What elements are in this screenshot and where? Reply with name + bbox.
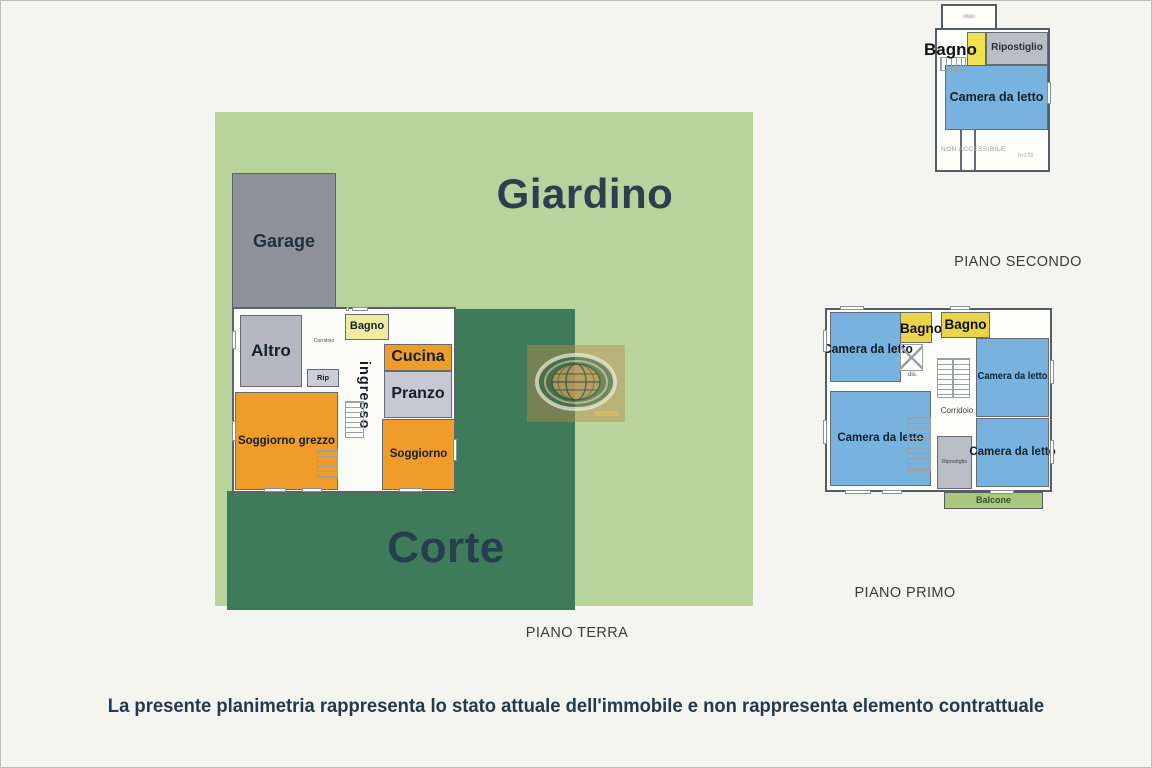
room-ripostiglio-p1: Ripostiglio: [937, 436, 972, 489]
stairs: [937, 358, 970, 398]
room-altro: Altro: [240, 315, 302, 387]
camera-p2-label: Camera da letto: [950, 91, 1044, 104]
window-marker: [990, 490, 1014, 494]
camera-br-label: Camera da letto: [969, 446, 1055, 458]
rip-label: Rip: [317, 374, 329, 382]
room-bagno-pt: Bagno: [345, 314, 389, 340]
soggiorno-label: Soggiorno: [390, 448, 448, 460]
window-marker: [840, 306, 864, 310]
window-marker: [346, 307, 349, 311]
corte-label: Corte: [366, 522, 526, 574]
bagno1-p1-label: Bagno: [898, 321, 944, 336]
room-camera-p2: Camera da letto: [945, 65, 1048, 130]
camera-tr-label: Camera da letto: [978, 372, 1048, 383]
window-marker: [823, 420, 827, 444]
window-marker: [1050, 360, 1054, 384]
stairs: [345, 401, 364, 438]
giardino-label: Giardino: [468, 170, 702, 218]
window-marker: [399, 488, 423, 492]
balcone: Balcone: [944, 492, 1043, 509]
stairs: [317, 450, 338, 478]
window-marker: [845, 490, 871, 494]
room-soggiorno: Soggiorno: [382, 419, 455, 490]
stair-rail: [952, 358, 954, 398]
cucina-label: Cucina: [391, 349, 444, 366]
piano-primo-caption: PIANO PRIMO: [835, 584, 975, 602]
secondo-top-box: sfiato: [941, 4, 997, 30]
room-cucina: Cucina: [384, 344, 452, 371]
window-marker: [1050, 440, 1054, 464]
globe-icon: [527, 345, 625, 422]
bagno-p2-label: Bagno: [924, 40, 977, 60]
window-marker: [352, 307, 368, 311]
piano-secondo-caption: PIANO SECONDO: [948, 253, 1088, 271]
window-marker: [302, 488, 322, 492]
ripostiglio-p2-label: Ripostiglio: [991, 43, 1043, 54]
secondo-top-box-label: sfiato: [963, 14, 975, 20]
garage-label: Garage: [253, 232, 315, 251]
house-ground-floor: Altro Corridoio Rip Bagno Cucina Pranzo …: [232, 307, 456, 493]
soggiorno-grezzo-label: Soggiorno grezzo: [238, 435, 335, 447]
window-marker: [882, 490, 902, 494]
room-bagno2-p1: Bagno: [941, 312, 990, 338]
bagno-pt-label: Bagno: [350, 321, 384, 333]
altro-label: Altro: [251, 342, 291, 360]
ripostiglio-p1-label: Ripostiglio: [942, 460, 967, 466]
dis-label: dis.: [908, 372, 917, 378]
stairs: [907, 417, 931, 471]
pranzo-label: Pranzo: [391, 386, 444, 403]
floorplan-page: Giardino Corte Garage Altro Corridoio Ri…: [0, 0, 1152, 768]
window-marker: [1047, 82, 1051, 104]
room-garage: Garage: [232, 173, 336, 309]
window-marker: [823, 330, 827, 352]
bagno2-p1-label: Bagno: [945, 318, 987, 332]
window-marker: [232, 421, 236, 441]
balcone-label: Balcone: [976, 496, 1011, 505]
window-marker: [232, 331, 236, 349]
height-note: h<1.50: [1018, 153, 1033, 159]
agency-watermark-logo: [527, 345, 625, 422]
window-marker: [264, 488, 286, 492]
corridoio-label: Corridoio: [306, 338, 342, 344]
window-marker: [950, 306, 970, 310]
shaft-hatch: [900, 344, 923, 371]
corridoio-p1-label: Corridoio: [938, 406, 976, 415]
room-pranzo: Pranzo: [384, 371, 452, 418]
room-camera-br: Camera da letto: [976, 418, 1049, 487]
room-camera-tr: Camera da letto: [976, 338, 1049, 417]
window-marker: [453, 439, 457, 461]
non-accessibile-label: NON ACCESSIBILE: [941, 146, 1006, 153]
room-ripostiglio-p2: Ripostiglio: [986, 32, 1048, 65]
piano-terra-caption: PIANO TERRA: [507, 624, 647, 642]
disclaimer-text: La presente planimetria rappresenta lo s…: [17, 696, 1134, 718]
room-rip: Rip: [307, 369, 339, 387]
